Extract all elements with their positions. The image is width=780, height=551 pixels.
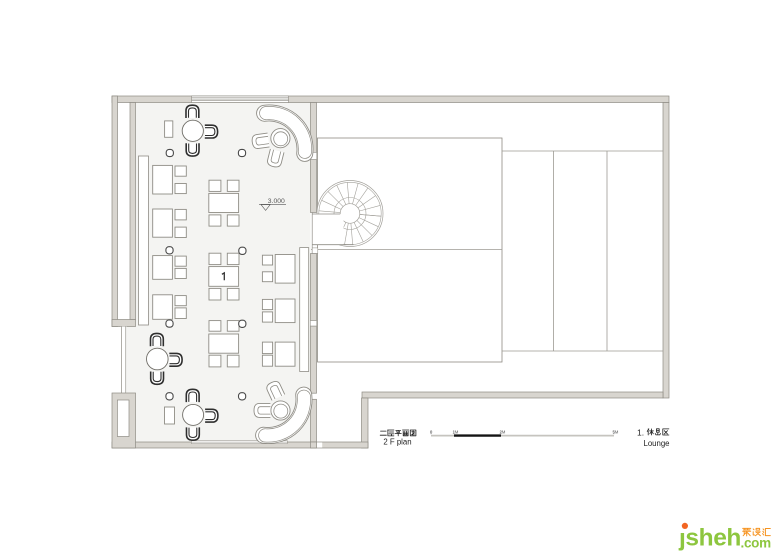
svg-text:3.000: 3.000 bbox=[268, 198, 285, 205]
svg-text:1M: 1M bbox=[453, 430, 459, 435]
svg-text:1.: 1. bbox=[637, 427, 644, 437]
svg-text:2M: 2M bbox=[500, 430, 506, 435]
svg-text:5M: 5M bbox=[613, 430, 619, 435]
svg-text:Lounge: Lounge bbox=[643, 439, 669, 448]
svg-text:2 F plan: 2 F plan bbox=[383, 438, 411, 447]
svg-text:.com: .com bbox=[741, 535, 772, 550]
